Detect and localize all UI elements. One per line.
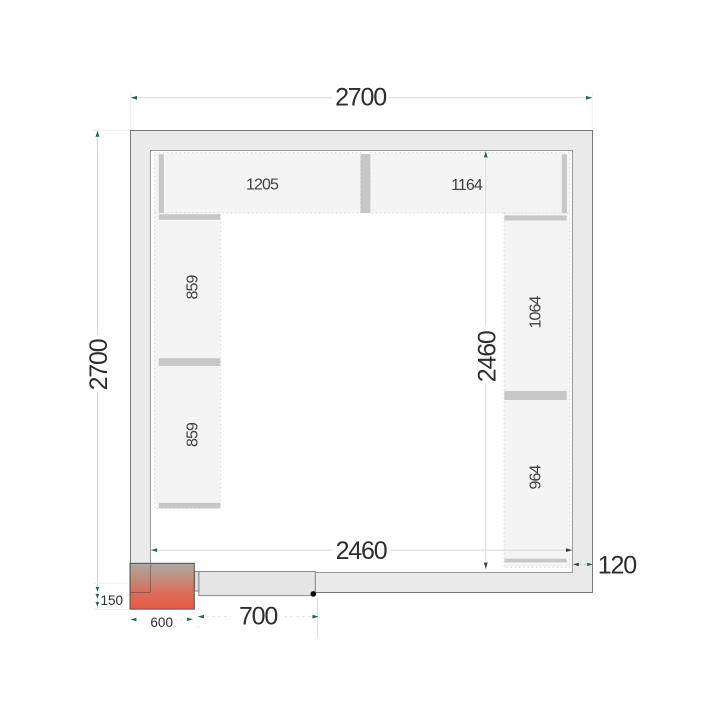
svg-text:120: 120	[598, 552, 636, 580]
svg-text:2460: 2460	[473, 331, 501, 382]
svg-text:1064: 1064	[528, 296, 545, 329]
svg-text:150: 150	[101, 593, 124, 608]
svg-text:700: 700	[239, 602, 277, 630]
svg-text:600: 600	[150, 615, 173, 630]
svg-text:2460: 2460	[336, 537, 387, 565]
svg-text:1164: 1164	[451, 177, 483, 194]
svg-text:2700: 2700	[335, 84, 386, 112]
svg-text:2700: 2700	[85, 339, 113, 390]
svg-text:859: 859	[185, 275, 202, 300]
svg-text:1205: 1205	[246, 177, 279, 194]
svg-text:964: 964	[528, 465, 545, 490]
svg-text:859: 859	[185, 422, 202, 447]
